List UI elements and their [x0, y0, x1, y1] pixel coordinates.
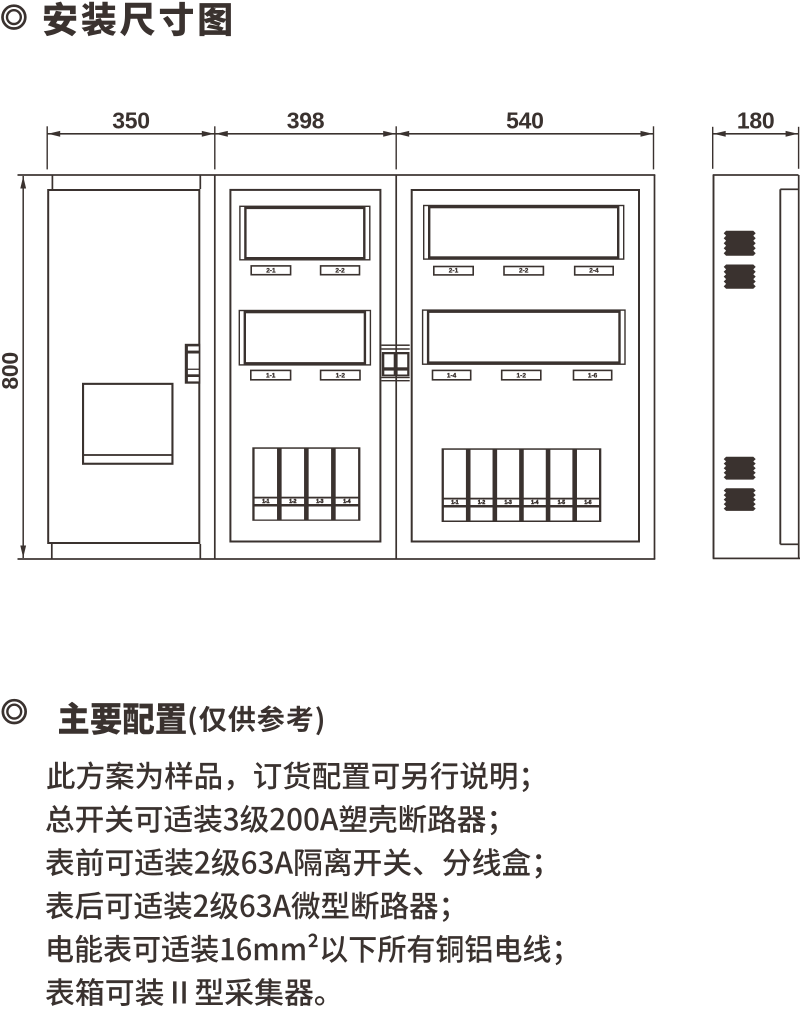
svg-text:2-2: 2-2	[519, 268, 529, 275]
svg-text:2-2: 2-2	[335, 268, 345, 275]
svg-text:1-3: 1-3	[505, 500, 512, 506]
svg-text:350: 350	[112, 107, 149, 133]
svg-text:1-1: 1-1	[451, 500, 458, 506]
svg-text:1-3: 1-3	[316, 499, 323, 505]
svg-text:1-6: 1-6	[588, 373, 598, 380]
svg-text:1-4: 1-4	[447, 373, 457, 380]
svg-text:1-2: 1-2	[517, 373, 527, 380]
svg-text:1-5: 1-5	[558, 500, 565, 506]
svg-text:180: 180	[737, 107, 774, 133]
svg-text:1-4: 1-4	[343, 499, 350, 505]
svg-text:2-4: 2-4	[589, 268, 599, 275]
svg-text:800: 800	[0, 352, 23, 389]
svg-text:540: 540	[506, 107, 543, 133]
svg-text:1-2: 1-2	[478, 500, 485, 506]
svg-text:1-1: 1-1	[266, 373, 276, 380]
svg-text:1-1: 1-1	[262, 499, 269, 505]
svg-text:398: 398	[287, 107, 325, 133]
svg-text:2-1: 2-1	[449, 268, 459, 275]
svg-text:2-1: 2-1	[266, 268, 276, 275]
svg-text:1-2: 1-2	[336, 373, 346, 380]
svg-text:1-4: 1-4	[531, 500, 538, 506]
svg-text:1-2: 1-2	[289, 499, 296, 505]
svg-text:1-6: 1-6	[584, 500, 591, 506]
